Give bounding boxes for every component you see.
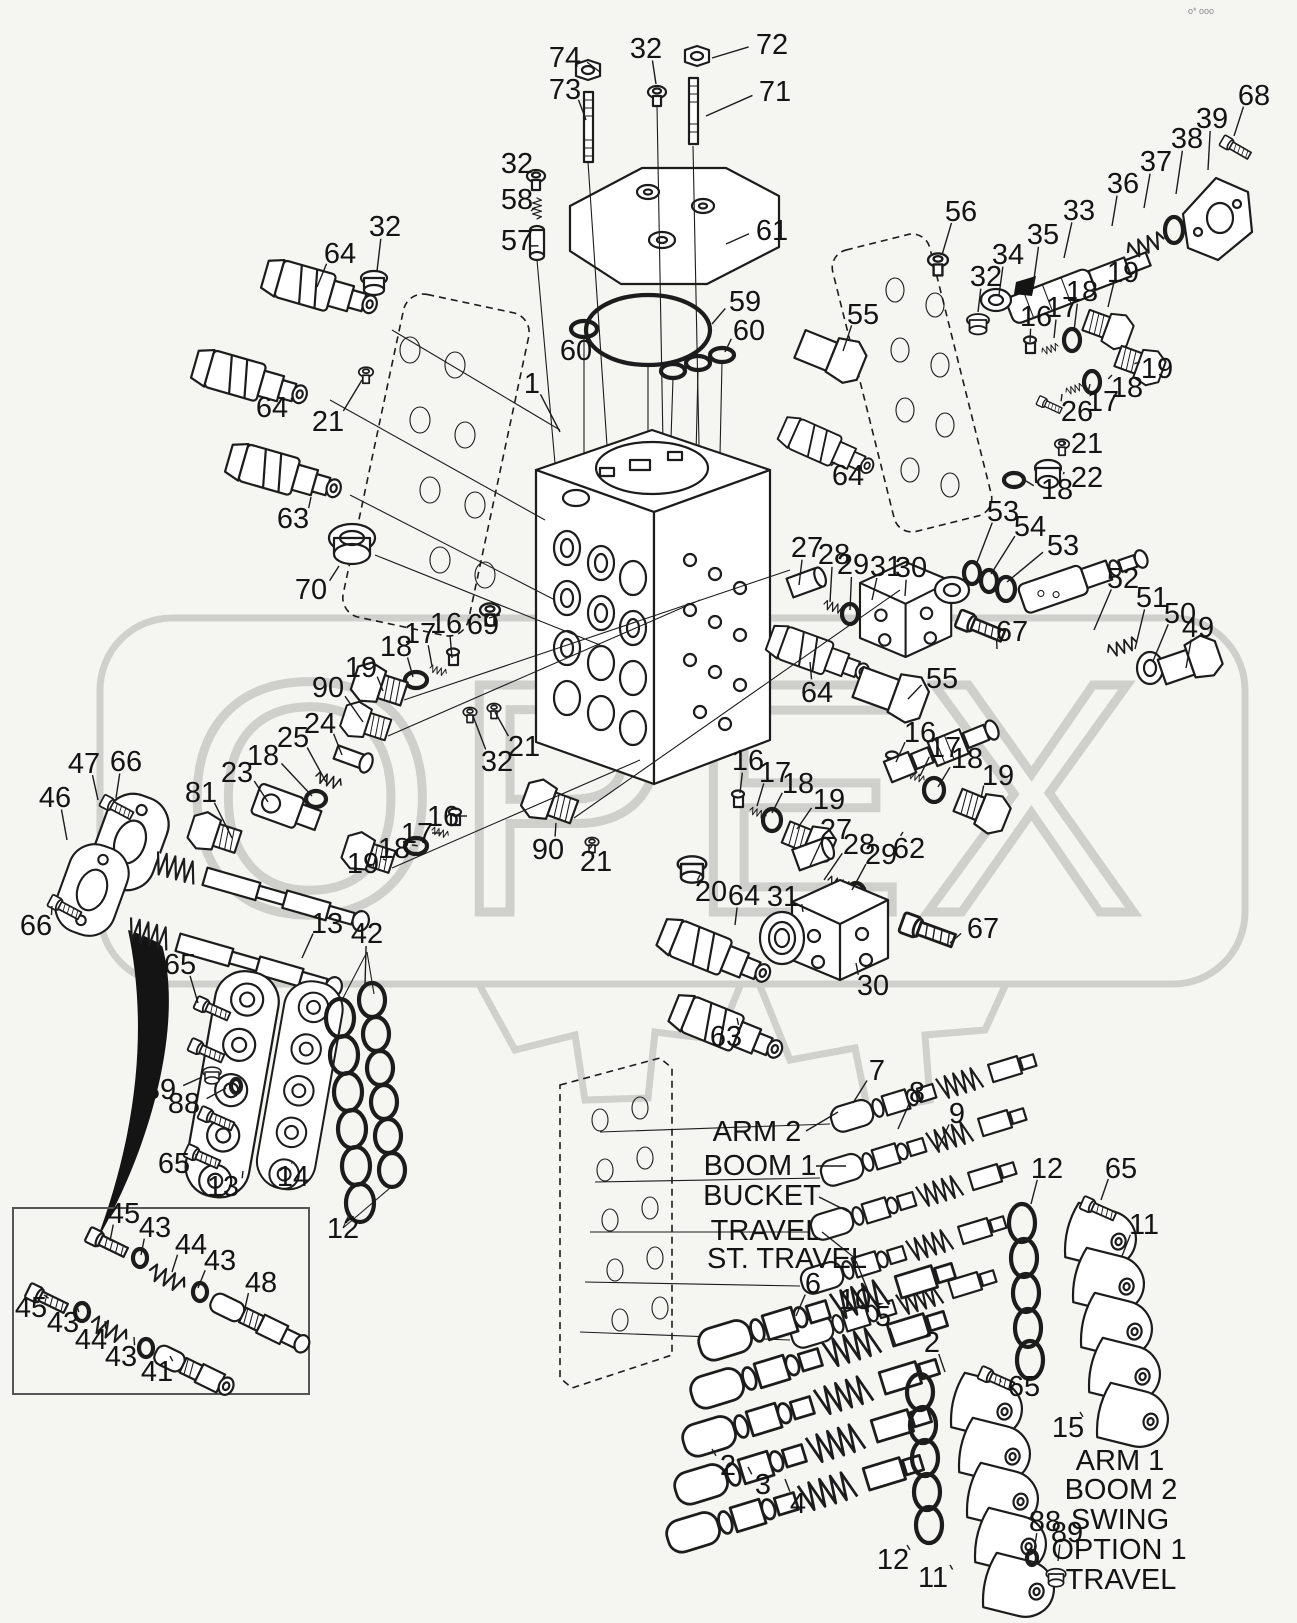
end-caps-11-lower bbox=[947, 1372, 1060, 1623]
o-ring-38 bbox=[1165, 217, 1183, 243]
callout-22: 22 bbox=[1071, 462, 1103, 494]
callout-90: 90 bbox=[312, 672, 344, 704]
callout-49: 49 bbox=[1182, 612, 1214, 644]
leader-line bbox=[1007, 552, 1043, 582]
callout-19: 19 bbox=[1141, 353, 1173, 385]
callout-90: 90 bbox=[532, 834, 564, 866]
callout-88: 88 bbox=[168, 1088, 200, 1120]
corner-marks: o* ooo bbox=[1188, 6, 1214, 16]
parts-catalog-page: OPEX bbox=[0, 0, 1297, 1623]
callout-15: 15 bbox=[1052, 1412, 1084, 1444]
leader-line bbox=[540, 394, 560, 432]
callout-71: 71 bbox=[759, 76, 791, 108]
plug-89 bbox=[203, 1067, 221, 1084]
section-label-st-travel: ST. TRAVEL bbox=[707, 1243, 867, 1275]
leader-line bbox=[1064, 222, 1072, 258]
callout-35: 35 bbox=[1027, 219, 1059, 251]
callout-47: 47 bbox=[68, 748, 100, 780]
callout-12: 12 bbox=[877, 1544, 909, 1576]
leader-line bbox=[1144, 174, 1150, 208]
callout-32: 32 bbox=[501, 148, 533, 180]
callout-14: 14 bbox=[277, 1161, 309, 1193]
screw-32-top bbox=[648, 86, 666, 106]
callout-44: 44 bbox=[75, 1324, 107, 1356]
callout-33: 33 bbox=[1063, 195, 1095, 227]
callout-43: 43 bbox=[139, 1212, 171, 1244]
callout-32: 32 bbox=[369, 211, 401, 243]
callout-32: 32 bbox=[630, 33, 662, 65]
callout-41: 41 bbox=[141, 1356, 173, 1388]
callout-18: 18 bbox=[380, 631, 412, 663]
washer-43b bbox=[193, 1283, 207, 1301]
callout-20: 20 bbox=[695, 876, 727, 908]
pin-16d bbox=[732, 791, 744, 808]
seat-50 bbox=[1137, 652, 1163, 684]
callout-13: 13 bbox=[311, 908, 343, 940]
screw-21r bbox=[1055, 439, 1069, 455]
callout-7: 7 bbox=[869, 1055, 885, 1087]
leader-line bbox=[61, 810, 67, 840]
callout-66: 66 bbox=[110, 746, 142, 778]
callout-58: 58 bbox=[501, 184, 533, 216]
callout-12: 12 bbox=[327, 1213, 359, 1245]
callout-30: 30 bbox=[895, 552, 927, 584]
spring-17r2 bbox=[1065, 383, 1084, 396]
callout-21: 21 bbox=[508, 731, 540, 763]
leader-line bbox=[950, 1565, 953, 1570]
callout-63: 63 bbox=[710, 1021, 742, 1053]
leader-line bbox=[183, 1078, 200, 1086]
section-label-boom-2: BOOM 2 bbox=[1065, 1474, 1178, 1506]
leader-line bbox=[830, 567, 832, 602]
callout-54: 54 bbox=[1014, 511, 1046, 543]
leader-line bbox=[712, 308, 725, 324]
callout-45: 45 bbox=[108, 1198, 140, 1230]
plug-32b bbox=[361, 271, 387, 295]
leader-line bbox=[330, 566, 339, 581]
pin-16a bbox=[447, 649, 459, 666]
callout-1: 1 bbox=[524, 368, 540, 400]
callout-61: 61 bbox=[756, 215, 788, 247]
leader-line bbox=[343, 380, 362, 411]
bolt-68 bbox=[1219, 135, 1252, 161]
callout-52: 52 bbox=[1107, 563, 1139, 595]
callout-10: 10 bbox=[839, 1284, 871, 1316]
callout-37: 37 bbox=[1140, 146, 1172, 178]
o-ring-column-12-lower bbox=[907, 1374, 942, 1543]
plug-70 bbox=[329, 524, 375, 564]
relief-valve-63a bbox=[224, 440, 346, 509]
leader-line bbox=[976, 523, 992, 565]
leader-line bbox=[991, 536, 1015, 574]
o-ring-18r bbox=[1064, 329, 1080, 351]
callout-64: 64 bbox=[256, 392, 288, 424]
callout-4: 4 bbox=[790, 1488, 806, 1520]
leader-line bbox=[1176, 151, 1182, 194]
callout-19: 19 bbox=[347, 848, 379, 880]
callout-55: 55 bbox=[847, 299, 879, 331]
callout-36: 36 bbox=[1107, 168, 1139, 200]
block-30b bbox=[792, 880, 888, 980]
o-ring-18r3 bbox=[1004, 473, 1024, 487]
callout-21: 21 bbox=[580, 846, 612, 878]
washer-43d bbox=[139, 1339, 153, 1357]
screw-26 bbox=[1036, 396, 1063, 415]
callout-73: 73 bbox=[549, 74, 581, 106]
callout-60: 60 bbox=[733, 315, 765, 347]
callout-11: 11 bbox=[918, 1562, 948, 1594]
callout-64: 64 bbox=[801, 677, 833, 709]
callout-43: 43 bbox=[204, 1245, 236, 1277]
callout-38: 38 bbox=[1171, 123, 1203, 155]
callout-60: 60 bbox=[560, 335, 592, 367]
leader-line bbox=[712, 47, 749, 58]
callout-19: 19 bbox=[1107, 257, 1139, 289]
stud-71 bbox=[689, 78, 698, 144]
o-ring-column-12-upper bbox=[1009, 1204, 1043, 1379]
callout-63: 63 bbox=[277, 503, 309, 535]
callout-12: 12 bbox=[1031, 1153, 1063, 1185]
callout-18: 18 bbox=[782, 768, 814, 800]
callout-29: 29 bbox=[837, 549, 869, 581]
leader-line bbox=[1026, 481, 1034, 486]
callout-65: 65 bbox=[158, 1148, 190, 1180]
o-ring-59 bbox=[586, 295, 710, 365]
section-label-boom-1: BOOM 1 bbox=[704, 1150, 817, 1182]
callout-69: 69 bbox=[467, 609, 499, 641]
o-ring-column-12L bbox=[326, 999, 374, 1222]
section-label-option-1: OPTION 1 bbox=[1051, 1534, 1186, 1566]
callout-66: 66 bbox=[20, 910, 52, 942]
callout-59: 59 bbox=[729, 286, 761, 318]
plug-89b bbox=[1046, 1569, 1066, 1587]
leader-line bbox=[706, 95, 752, 116]
callout-65: 65 bbox=[1008, 1371, 1040, 1403]
callout-43: 43 bbox=[105, 1341, 137, 1373]
bolt-45a bbox=[84, 1227, 129, 1260]
fitting-30b bbox=[760, 912, 804, 964]
section-label-arm-2: ARM 2 bbox=[713, 1116, 802, 1148]
callout-30: 30 bbox=[857, 970, 889, 1002]
spring-44a bbox=[146, 1263, 187, 1294]
plug-on-30a bbox=[935, 577, 969, 603]
callout-3: 3 bbox=[755, 1469, 771, 1501]
gasket-plate-left bbox=[339, 290, 533, 639]
leader-line bbox=[1000, 1379, 1001, 1382]
callout-9: 9 bbox=[949, 1098, 965, 1130]
callout-70: 70 bbox=[295, 574, 327, 606]
callout-18: 18 bbox=[378, 833, 410, 865]
callout-53: 53 bbox=[1047, 530, 1079, 562]
leader-line bbox=[377, 239, 381, 271]
washer-43a bbox=[133, 1249, 147, 1267]
callout-64: 64 bbox=[832, 460, 864, 492]
callout-62: 62 bbox=[893, 833, 925, 865]
callout-26: 26 bbox=[1061, 396, 1093, 428]
callout-21: 21 bbox=[312, 406, 344, 438]
section-label-arm-1: ARM 1 bbox=[1076, 1445, 1165, 1477]
callout-5: 5 bbox=[875, 1301, 891, 1333]
nut-72 bbox=[685, 46, 709, 66]
flange-39 bbox=[1183, 178, 1252, 260]
callout-2: 2 bbox=[720, 1450, 736, 1482]
callout-74: 74 bbox=[549, 42, 581, 74]
callout-45: 45 bbox=[15, 1292, 47, 1324]
callout-18: 18 bbox=[247, 740, 279, 772]
callout-67: 67 bbox=[996, 616, 1028, 648]
callout-11: 11 bbox=[1129, 1209, 1159, 1241]
callout-64: 64 bbox=[728, 880, 760, 912]
plug-32r bbox=[967, 314, 989, 334]
callout-55: 55 bbox=[926, 663, 958, 695]
callout-25: 25 bbox=[277, 722, 309, 754]
leader-line bbox=[1208, 131, 1210, 170]
relief-valve-64b bbox=[190, 346, 312, 415]
callout-72: 72 bbox=[756, 29, 788, 61]
callout-56: 56 bbox=[945, 196, 977, 228]
section-label-travel: TRAVEL bbox=[1066, 1564, 1177, 1596]
spring-17r bbox=[1041, 343, 1060, 356]
callout-18: 18 bbox=[1041, 474, 1073, 506]
plug-55a bbox=[793, 322, 871, 388]
callout-65: 65 bbox=[164, 949, 196, 981]
callout-19: 19 bbox=[813, 784, 845, 816]
leader-line bbox=[1112, 196, 1117, 226]
callout-13: 13 bbox=[207, 1171, 239, 1203]
gasket-plate-bottom-right bbox=[560, 1058, 672, 1388]
plug-56 bbox=[928, 253, 948, 275]
plug-19r1 bbox=[1080, 303, 1136, 353]
leader-line bbox=[242, 1171, 243, 1178]
callout-57: 57 bbox=[501, 225, 533, 257]
callout-42: 42 bbox=[351, 918, 383, 950]
callout-81: 81 bbox=[185, 777, 217, 809]
stud-73 bbox=[584, 92, 593, 162]
section-label-bucket: BUCKET bbox=[703, 1180, 821, 1212]
callout-46: 46 bbox=[39, 782, 71, 814]
callout-68: 68 bbox=[1238, 80, 1270, 112]
section-label-swing: SWING bbox=[1071, 1504, 1169, 1536]
callout-64: 64 bbox=[324, 238, 356, 270]
spool-48 bbox=[208, 1291, 313, 1356]
callout-2: 2 bbox=[924, 1327, 940, 1359]
callout-48: 48 bbox=[245, 1267, 277, 1299]
callout-32: 32 bbox=[970, 261, 1002, 293]
main-valve-body bbox=[536, 430, 770, 784]
callout-18: 18 bbox=[951, 743, 983, 775]
callout-21: 21 bbox=[1071, 428, 1103, 460]
callout-31: 31 bbox=[767, 881, 799, 913]
callout-19: 19 bbox=[982, 760, 1014, 792]
callout-44: 44 bbox=[175, 1229, 207, 1261]
callout-67: 67 bbox=[967, 913, 999, 945]
callout-8: 8 bbox=[909, 1077, 925, 1109]
callout-18: 18 bbox=[1066, 276, 1098, 308]
callout-19: 19 bbox=[345, 652, 377, 684]
callout-65: 65 bbox=[1105, 1153, 1137, 1185]
leader-line bbox=[1033, 247, 1038, 286]
